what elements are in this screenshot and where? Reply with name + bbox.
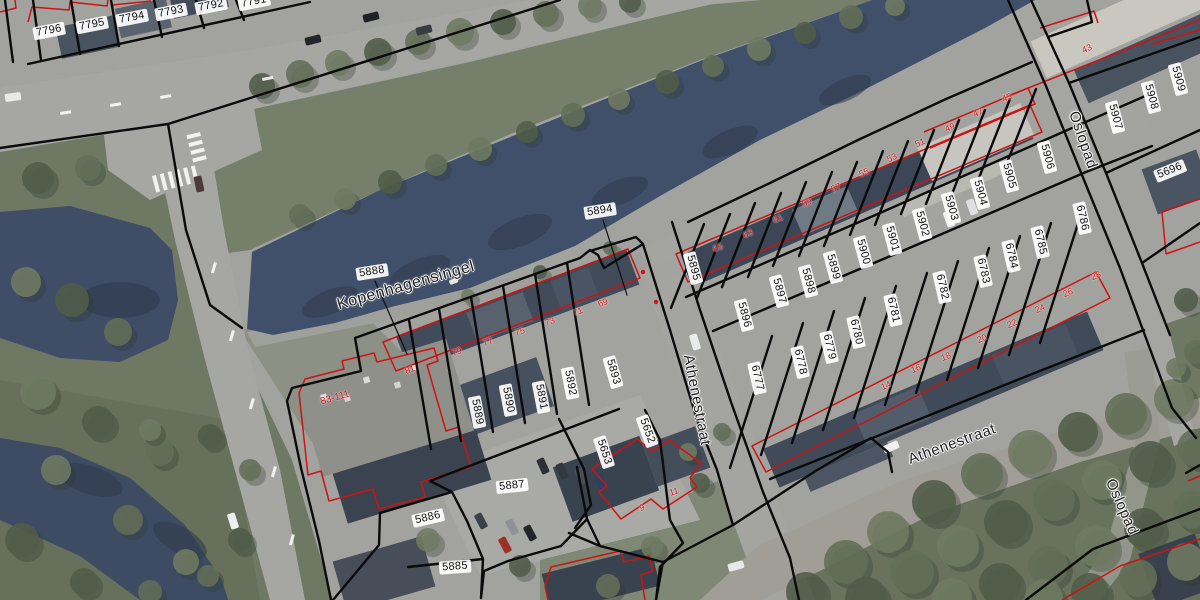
house-number-label-22: 22	[1006, 318, 1019, 330]
street-label-oslopad-3: Oslopad	[1065, 109, 1101, 171]
house-number-label-69: 69	[597, 297, 610, 309]
house-number-label-71: 71	[572, 306, 585, 318]
parcel-label-5897: 5897	[769, 274, 790, 308]
parcel-label-5901: 5901	[882, 222, 903, 256]
parcel-label-7791: 7791	[237, 0, 271, 11]
house-number-label-18: 18	[940, 351, 953, 363]
house-number-label-81: 81	[404, 364, 417, 376]
house-number-label-28: 28	[1090, 270, 1103, 282]
house-number-label-9: 9	[638, 503, 646, 513]
parcel-label-5889: 5889	[468, 395, 487, 429]
house-number-label-83-111: 83-111	[320, 390, 351, 407]
house-number-label-49: 49	[944, 122, 957, 134]
street-label-kopenhagensingel-0: Kopenhagensingel	[335, 258, 477, 314]
street-label-athenestraat-1: Athenestraat	[680, 353, 714, 447]
parcel-label-5653: 5653	[593, 435, 615, 469]
house-number-label-63: 63	[742, 228, 755, 240]
house-number-label-61: 61	[772, 213, 785, 225]
parcel-label-5890: 5890	[499, 383, 518, 417]
house-number-label-24: 24	[1034, 303, 1047, 315]
parcel-label-5885: 5885	[439, 559, 472, 574]
map-canvas[interactable]: 7796779577947793779277915888589458895890…	[0, 0, 1200, 600]
parcel-label-5902: 5902	[912, 207, 933, 241]
parcel-label-6782: 6782	[932, 270, 952, 304]
house-number-label-51: 51	[914, 137, 927, 149]
parcel-label-6784: 6784	[1001, 239, 1021, 273]
house-number-label-47: 47	[972, 107, 985, 119]
house-number-label-26: 26	[1062, 287, 1075, 299]
house-number-label-53: 53	[886, 152, 899, 164]
house-number-label-79: 79	[451, 346, 464, 358]
parcel-label-6780: 6780	[846, 315, 866, 349]
house-number-label-20: 20	[976, 333, 989, 345]
house-number-label-45: 45	[1001, 92, 1014, 104]
house-number-label-11: 11	[668, 486, 680, 497]
parcel-label-5906: 5906	[1037, 140, 1058, 174]
house-number-label-59: 59	[801, 197, 814, 209]
house-number-label-16: 16	[910, 363, 923, 375]
parcel-label-5907: 5907	[1105, 100, 1126, 134]
parcel-label-6785: 6785	[1030, 225, 1050, 259]
parcel-label-5652: 5652	[635, 414, 658, 448]
parcel-label-5905: 5905	[999, 159, 1020, 193]
parcel-label-6779: 6779	[819, 330, 839, 364]
parcel-label-7795: 7795	[75, 16, 109, 35]
parcel-label-6783: 6783	[973, 254, 993, 288]
parcel-label-5894: 5894	[583, 202, 616, 220]
house-number-label-75: 75	[514, 326, 527, 338]
street-label-oslopad-4: Oslopad	[1102, 476, 1142, 538]
street-label-athenestraat-2: Athenestraat	[906, 420, 999, 468]
parcel-label-5892: 5892	[561, 366, 580, 400]
parcel-label-5893: 5893	[602, 355, 623, 389]
parcel-label-5903: 5903	[941, 191, 962, 225]
parcel-label-5908: 5908	[1141, 80, 1162, 114]
map-labels: 7796779577947793779277915888589458895890…	[0, 0, 1200, 600]
parcel-label-7792: 7792	[194, 0, 228, 15]
parcel-label-5891: 5891	[532, 380, 551, 414]
parcel-label-5909: 5909	[1168, 62, 1189, 96]
parcel-label-6778: 6778	[790, 345, 810, 379]
parcel-label-5888: 5888	[355, 263, 388, 281]
parcel-label-5886: 5886	[411, 508, 445, 528]
house-number-label-57: 57	[830, 182, 843, 194]
parcel-label-5898: 5898	[798, 264, 819, 298]
parcel-label-5895: 5895	[683, 251, 704, 285]
parcel-label-5887: 5887	[496, 478, 529, 494]
parcel-label-5896: 5896	[734, 298, 755, 332]
parcel-label-5904: 5904	[970, 176, 991, 210]
parcel-label-5696: 5696	[1153, 159, 1187, 183]
parcel-label-6777: 6777	[747, 361, 767, 395]
parcel-label-5899: 5899	[823, 250, 844, 284]
house-number-label-73: 73	[544, 316, 557, 328]
parcel-label-5900: 5900	[853, 235, 874, 269]
parcel-label-6781: 6781	[883, 293, 903, 327]
parcel-label-7796: 7796	[32, 22, 66, 41]
house-number-label-55: 55	[858, 167, 871, 179]
house-number-label-14: 14	[880, 380, 893, 392]
house-number-label-77: 77	[482, 336, 495, 348]
house-number-label-65: 65	[712, 242, 725, 254]
parcel-label-6786: 6786	[1072, 201, 1092, 235]
parcel-label-7794: 7794	[115, 9, 149, 28]
parcel-label-7793: 7793	[154, 3, 188, 22]
house-number-label-43: 43	[1081, 43, 1094, 55]
